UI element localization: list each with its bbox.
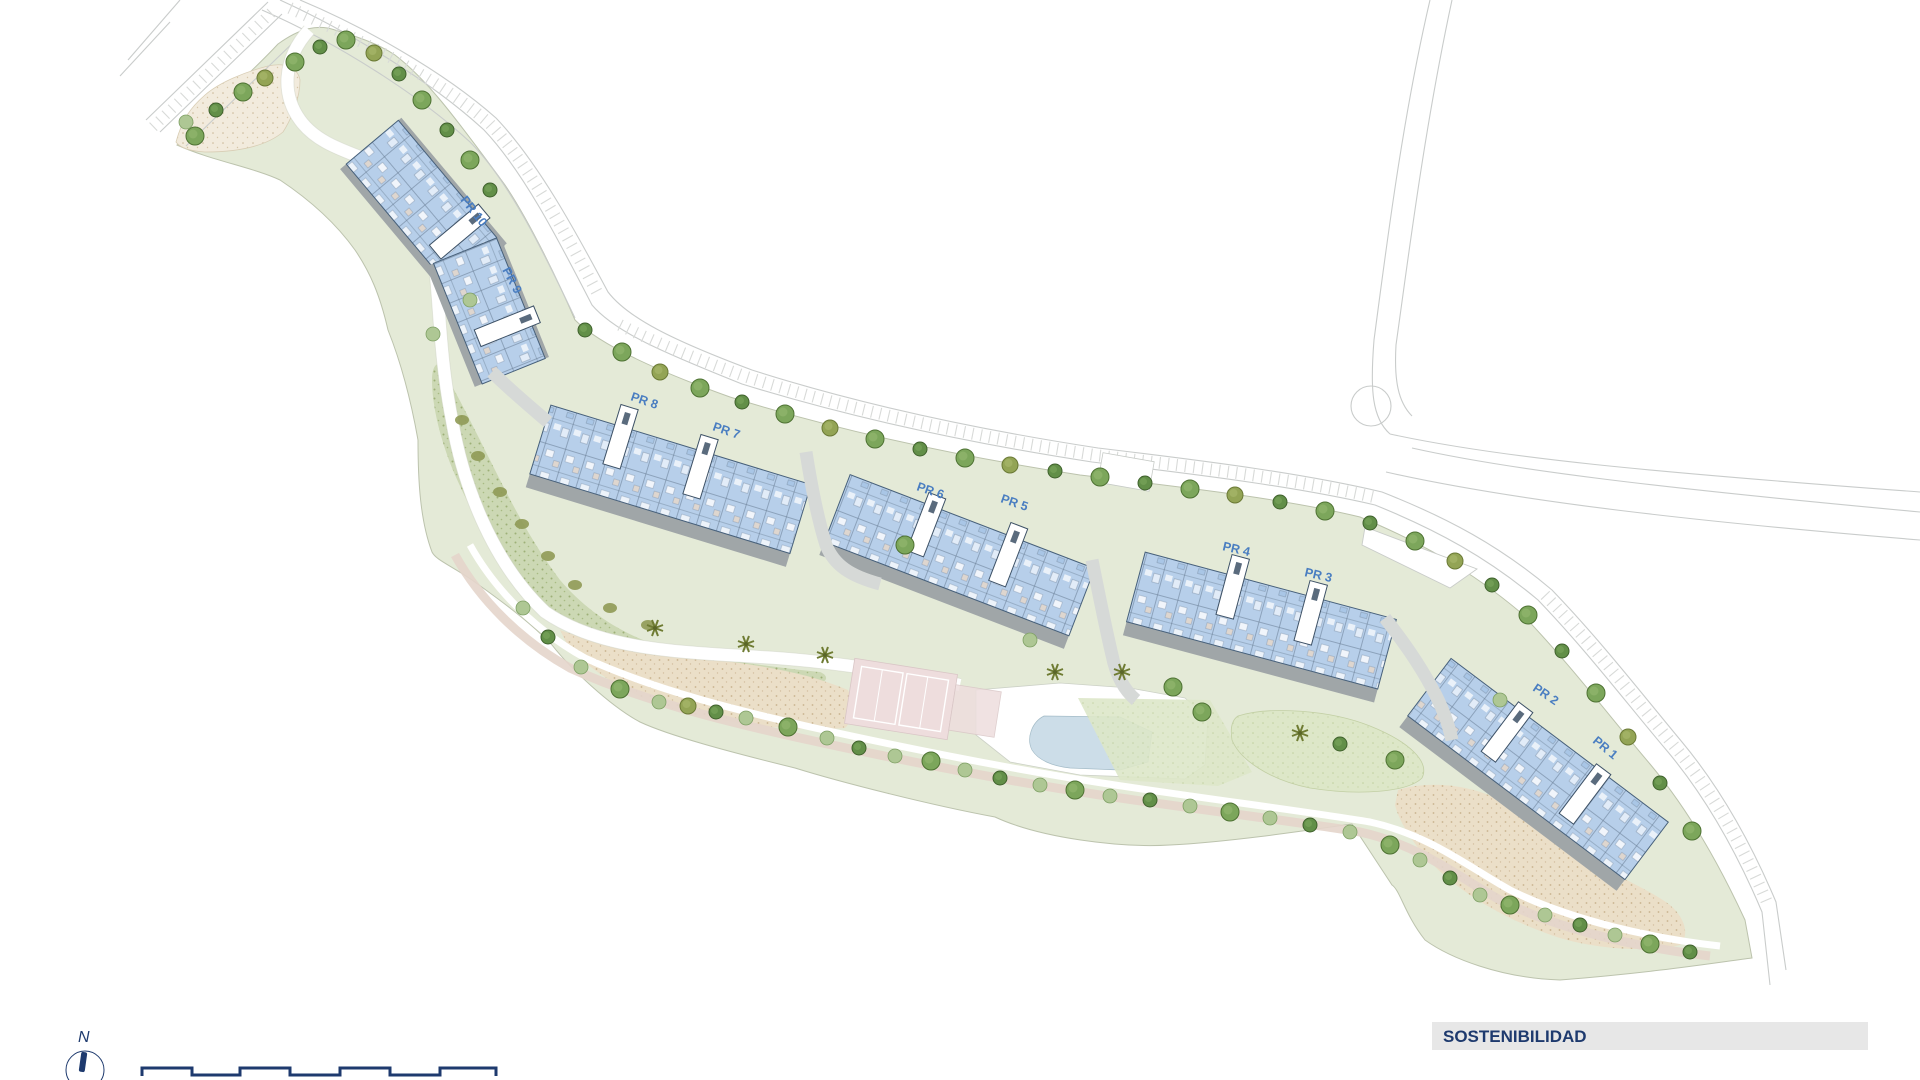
svg-text:SOSTENIBILIDAD: SOSTENIBILIDAD — [1443, 1027, 1587, 1046]
svg-text:N: N — [78, 1029, 90, 1046]
